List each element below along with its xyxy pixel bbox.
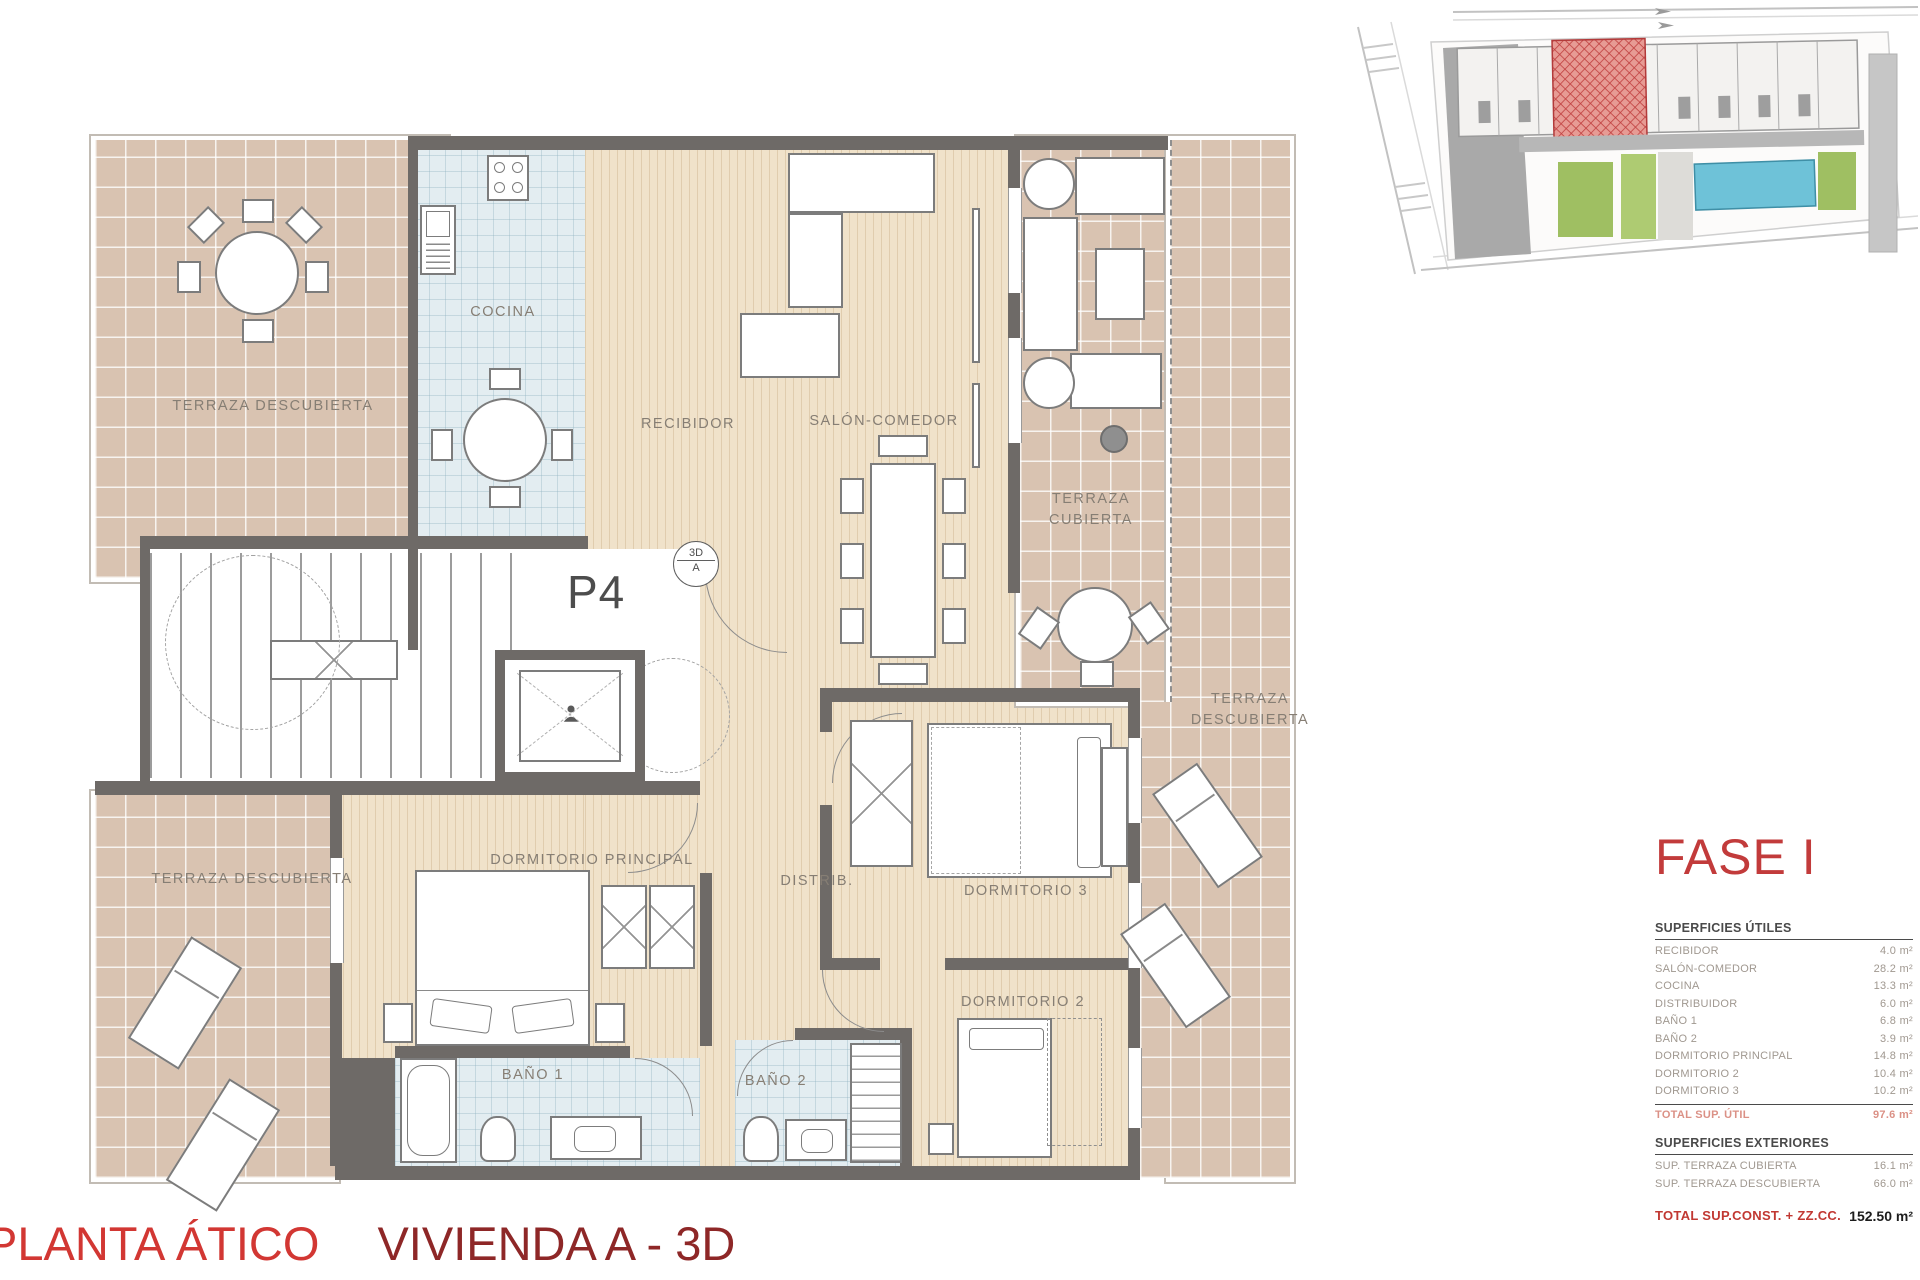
room-label-terrace-covered: TERRAZA CUBIERTA [1021, 489, 1161, 531]
linen-cabinet [850, 1043, 902, 1163]
floorplan-sheet: TERRAZA DESCUBIERTA COCINA RECIBIDOR SAL… [0, 0, 1920, 1280]
landscape [1558, 162, 1613, 237]
bath-vanity [550, 1116, 642, 1160]
terrace-boundary-dashed [1170, 140, 1172, 702]
chair [942, 608, 966, 644]
side-table [1023, 158, 1075, 210]
road [1453, 15, 1918, 20]
road [1358, 27, 1415, 274]
parking-strip [1869, 54, 1897, 252]
outdoor-sofa [1070, 353, 1162, 409]
wardrobe [601, 885, 647, 969]
round-chair [1023, 357, 1075, 409]
sheet-title: PLANTA ÁTICOVIVIENDA A - 3D [0, 1216, 735, 1271]
wall [700, 873, 712, 1046]
wall [95, 781, 700, 795]
chair [878, 435, 928, 457]
bed-master [415, 870, 590, 1046]
area-row: DORMITORIO 210.4 m² [1655, 1066, 1913, 1084]
wardrobe [850, 720, 913, 867]
chair [1080, 661, 1114, 687]
bed-3 [927, 723, 1112, 878]
chair [840, 543, 864, 579]
landscape [1818, 152, 1856, 210]
floor-plan: TERRAZA DESCUBIERTA COCINA RECIBIDOR SAL… [95, 113, 1310, 1193]
area-row: RECIBIDOR4.0 m² [1655, 943, 1913, 961]
area-row: SALÓN-COMEDOR28.2 m² [1655, 961, 1913, 979]
chair [840, 608, 864, 644]
toilet [480, 1116, 516, 1162]
bathtub [400, 1058, 457, 1163]
wall [140, 536, 150, 795]
planter [1100, 425, 1128, 453]
room-label-recibidor: RECIBIDOR [598, 414, 778, 435]
dining-table [870, 463, 936, 658]
room-label-salon: SALÓN-COMEDOR [759, 411, 1009, 432]
room-label-cocina: COCINA [433, 302, 573, 323]
room-label-bath2: BAÑO 2 [716, 1071, 836, 1092]
area-row: SUP. TERRAZA DESCUBIERTA66.0 m² [1655, 1176, 1913, 1194]
room-label-dorm2: DORMITORIO 2 [913, 992, 1133, 1013]
chair [242, 319, 274, 343]
site-plan [1303, 2, 1918, 277]
chair [177, 261, 201, 293]
room-label-terrace-tl: TERRAZA DESCUBIERTA [153, 396, 393, 417]
nightstand [928, 1123, 954, 1155]
crosswalk [1363, 44, 1431, 211]
total-built-area-row: TOTAL SUP.CONST. + ZZ.CC. 152.50 m² [1655, 1208, 1913, 1224]
stove [487, 155, 529, 201]
turning-circle [165, 555, 340, 730]
person-icon [561, 704, 581, 724]
chair [489, 368, 521, 390]
desk [1101, 747, 1128, 867]
bed-2 [957, 1018, 1052, 1158]
sofa [788, 153, 935, 213]
wall [395, 1046, 630, 1058]
chair [242, 199, 274, 223]
plant-title: PLANTA ÁTICO [0, 1217, 319, 1270]
areas-table-exteriores: SUPERFICIES EXTERIORES SUP. TERRAZA CUBI… [1655, 1136, 1913, 1193]
terrace-dining-table [1057, 587, 1133, 663]
areas-table-utiles: SUPERFICIES ÚTILES RECIBIDOR4.0 m² SALÓN… [1655, 921, 1913, 1121]
sofa-chaise [788, 213, 843, 308]
area-row: BAÑO 23.9 m² [1655, 1031, 1913, 1049]
wall [342, 1058, 395, 1178]
road [1453, 7, 1918, 12]
nightstand [595, 1003, 625, 1043]
window [1128, 738, 1142, 823]
unit-number: P4 [567, 565, 625, 619]
outdoor-coffee-table [1095, 248, 1145, 320]
wall [945, 958, 1140, 970]
outdoor-sofa [1075, 157, 1165, 215]
coffee-table [740, 313, 840, 378]
room-label-terrace-right: TERRAZA DESCUBIERTA [1180, 689, 1320, 731]
chair [840, 478, 864, 514]
wall [795, 1028, 905, 1040]
tv-sideboard [972, 208, 980, 363]
window [1128, 1048, 1142, 1128]
chair [305, 261, 329, 293]
chair [942, 478, 966, 514]
area-row: DORMITORIO PRINCIPAL14.8 m² [1655, 1048, 1913, 1066]
room-label-dorm3: DORMITORIO 3 [916, 881, 1136, 902]
toilet [743, 1116, 779, 1162]
table-header: SUPERFICIES EXTERIORES [1655, 1136, 1913, 1155]
chair [878, 663, 928, 685]
landscape [1621, 154, 1656, 239]
terrace-table [215, 231, 299, 315]
section-marker-3d-a: 3D A [673, 541, 719, 587]
wall [820, 688, 1140, 702]
phase-heading: FASE I [1655, 828, 1817, 886]
kitchen-sink [420, 205, 456, 275]
wall [335, 1166, 1140, 1180]
wall [140, 536, 588, 549]
path [1658, 152, 1693, 240]
room-label-master: DORMITORIO PRINCIPAL [462, 850, 722, 871]
area-row: BAÑO 16.8 m² [1655, 1013, 1913, 1031]
room-label-terrace-bl: TERRAZA DESCUBIERTA [132, 869, 372, 890]
total-useful-area-row: TOTAL SUP. ÚTIL97.6 m² [1655, 1104, 1913, 1121]
kitchen-table [463, 398, 547, 482]
bath-vanity [785, 1119, 847, 1161]
wardrobe [649, 885, 695, 969]
wall [408, 136, 418, 650]
nightstand [383, 1003, 413, 1043]
bed-2-trundle [1047, 1018, 1102, 1146]
room-label-bath1: BAÑO 1 [473, 1065, 593, 1086]
table-header: SUPERFICIES ÚTILES [1655, 921, 1913, 940]
chair [551, 429, 573, 461]
window [1008, 338, 1022, 443]
window [1008, 188, 1022, 293]
wall [330, 795, 342, 1166]
wall [820, 702, 832, 732]
elevator-car [519, 670, 621, 762]
wall [408, 136, 1168, 150]
chair [942, 543, 966, 579]
highlighted-unit [1552, 39, 1647, 139]
wall [820, 958, 880, 970]
dwelling-title: VIVIENDA A - 3D [377, 1217, 735, 1270]
area-row: COCINA13.3 m² [1655, 978, 1913, 996]
area-row: SUP. TERRAZA CUBIERTA16.1 m² [1655, 1158, 1913, 1176]
room-label-distrib: DISTRIB. [752, 871, 882, 892]
chair [489, 486, 521, 508]
area-row: DISTRIBUIDOR6.0 m² [1655, 996, 1913, 1014]
area-row: DORMITORIO 310.2 m² [1655, 1083, 1913, 1101]
outdoor-sofa [1023, 217, 1078, 351]
chair [431, 429, 453, 461]
pool [1694, 160, 1816, 210]
